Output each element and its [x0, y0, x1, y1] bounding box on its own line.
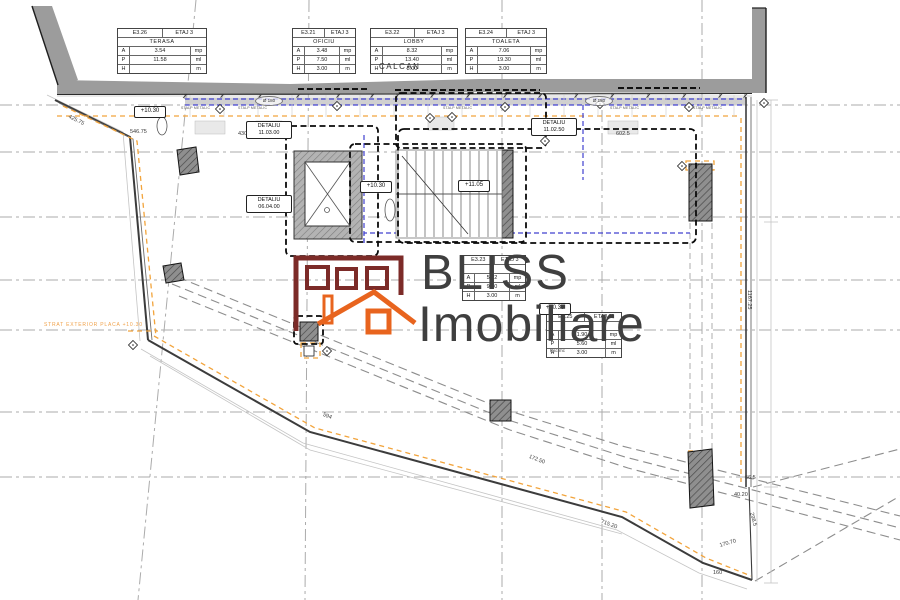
calcan-label: CALCAN: [379, 62, 420, 71]
row-unit: m: [442, 65, 457, 73]
row-unit: ml: [191, 56, 206, 64]
room-table-row: Hm: [118, 64, 206, 73]
detail-label: DETALIU06.04.00: [246, 195, 292, 213]
stalp-label: STALP METALIC: [181, 106, 210, 110]
row-unit: mp: [191, 47, 206, 55]
row-key: P: [118, 56, 130, 64]
row-value: 19.30: [478, 56, 531, 64]
row-key: A: [293, 47, 305, 55]
row-key: H: [118, 65, 130, 73]
detail-label-line2: 11.03.00: [247, 130, 291, 137]
row-unit: mp: [340, 47, 355, 55]
survey-diamond-dot: [688, 106, 690, 108]
row-value: 3.48: [305, 47, 340, 55]
stair-wall: [502, 150, 513, 238]
stalp-label: STALP METALIC: [610, 106, 639, 110]
stalp-label: STALP METALIC: [693, 106, 722, 110]
room-name: TERASA: [118, 37, 206, 46]
survey-diamond-dot: [451, 116, 453, 118]
logo-text-bliss: BLISS: [421, 245, 570, 301]
row-unit: mp: [442, 47, 457, 55]
row-key: A: [371, 47, 383, 55]
detail-label-line2: 11.02.50: [532, 127, 576, 134]
row-unit: m: [531, 65, 546, 73]
logo-text-imobiliare: Imobiliare: [418, 295, 645, 353]
room-table-row: P19.30ml: [466, 55, 546, 64]
room-floor: ETAJ 3: [162, 29, 207, 37]
row-key: H: [466, 65, 478, 73]
staircase: [396, 150, 502, 238]
dimension-label: 602.5: [616, 131, 630, 137]
diameter-label: Ø 180: [255, 96, 283, 106]
survey-diamond-dot: [763, 102, 765, 104]
survey-diamond-dot: [326, 350, 328, 352]
row-key: H: [293, 65, 305, 73]
room-name: TOALETA: [466, 37, 546, 46]
floor-plan-page: CALCAN STRAT EXTERIOR PLACA +10.30 Rsc m…: [0, 0, 900, 600]
column: [163, 263, 184, 283]
stalp-label: STALP METALIC: [443, 106, 472, 110]
row-value: 7.06: [478, 47, 531, 55]
room-name: OFICIU: [293, 37, 355, 46]
column: [688, 449, 714, 508]
room-code: E3.26: [118, 29, 162, 37]
room-table-header: E3.24ETAJ 3: [466, 29, 546, 37]
row-unit: mp: [531, 47, 546, 55]
sw-detail-square: [304, 346, 314, 356]
room-floor: ETAJ 3: [506, 29, 547, 37]
row-value: 3.54: [130, 47, 191, 55]
room-name: LOBBY: [371, 37, 457, 46]
survey-diamond-dot: [429, 117, 431, 119]
room-table-header: E3.21ETAJ 3: [293, 29, 355, 37]
room-code: E3.21: [293, 29, 324, 37]
row-unit: ml: [442, 56, 457, 64]
detail-label: DETALIU11.03.00: [246, 121, 292, 139]
detail-label-line1: DETALIU: [532, 120, 576, 127]
elevator-shaft: [294, 151, 362, 239]
room-table-row: H3.00m: [293, 64, 355, 73]
room-table-header: E3.22ETAJ 3: [371, 29, 457, 37]
row-key: P: [293, 56, 305, 64]
row-value: 3.00: [305, 65, 340, 73]
row-unit: ml: [531, 56, 546, 64]
row-value: 8.32: [383, 47, 442, 55]
level-marker: +10.30: [360, 181, 392, 193]
room-floor: ETAJ 3: [414, 29, 458, 37]
dimension-label: 1167.25: [746, 290, 752, 309]
dimension-label: 56.5: [745, 475, 756, 481]
room-table-header: E3.26ETAJ 3: [118, 29, 206, 37]
row-value: 3.00: [478, 65, 531, 73]
dimension-label: 160: [713, 570, 722, 576]
row-unit: ml: [340, 56, 355, 64]
exterior-note-label: STRAT EXTERIOR PLACA +10.30: [44, 322, 143, 328]
room-table-row: H3.00m: [466, 64, 546, 73]
row-unit: m: [191, 65, 206, 73]
room-table-row: A3.48mp: [293, 46, 355, 55]
row-value: 11.58: [130, 56, 191, 64]
stalp-label: STALP METALIC: [238, 106, 267, 110]
survey-diamond-dot: [219, 108, 221, 110]
column: [490, 400, 511, 421]
row-value: 7.50: [305, 56, 340, 64]
survey-diamond-dot: [544, 140, 546, 142]
survey-diamond-dot: [336, 105, 338, 107]
room-table-row: A7.06mp: [466, 46, 546, 55]
level-marker: +11.05: [458, 180, 490, 192]
survey-diamond-dot: [681, 165, 683, 167]
row-value: [130, 65, 191, 73]
room-table-row: A8.32mp: [371, 46, 457, 55]
survey-diamond-dot: [132, 344, 134, 346]
detail-label-line1: DETALIU: [247, 197, 291, 204]
survey-diamond-dot: [504, 106, 506, 108]
column: [177, 147, 199, 175]
dimension-label: 430: [238, 131, 247, 137]
row-key: A: [118, 47, 130, 55]
room-table-row: A3.54mp: [118, 46, 206, 55]
dimension-label: 546.75: [130, 129, 147, 135]
room-table-row: P11.58ml: [118, 55, 206, 64]
row-unit: m: [340, 65, 355, 73]
level-marker: +10.30: [134, 106, 166, 118]
room-code: E3.24: [466, 29, 506, 37]
room-table: E3.24ETAJ 3TOALETAA7.06mpP19.30mlH3.00m: [465, 28, 547, 74]
detail-label-line2: 06.04.00: [247, 204, 291, 211]
row-key: A: [466, 47, 478, 55]
room-table: E3.26ETAJ 3TERASAA3.54mpP11.58mlHm: [117, 28, 207, 74]
diameter-label: Ø 180: [585, 96, 613, 106]
room-table: E3.21ETAJ 3OFICIUA3.48mpP7.50mlH3.00m: [292, 28, 356, 74]
column: [689, 164, 712, 221]
room-table-row: P7.50ml: [293, 55, 355, 64]
detail-label-line1: DETALIU: [247, 123, 291, 130]
column: [300, 322, 318, 341]
row-key: P: [466, 56, 478, 64]
detail-label: DETALIU11.02.50: [531, 118, 577, 136]
dimension-label: 40.20: [734, 492, 748, 498]
room-code: E3.22: [371, 29, 414, 37]
room-floor: ETAJ 3: [324, 29, 356, 37]
